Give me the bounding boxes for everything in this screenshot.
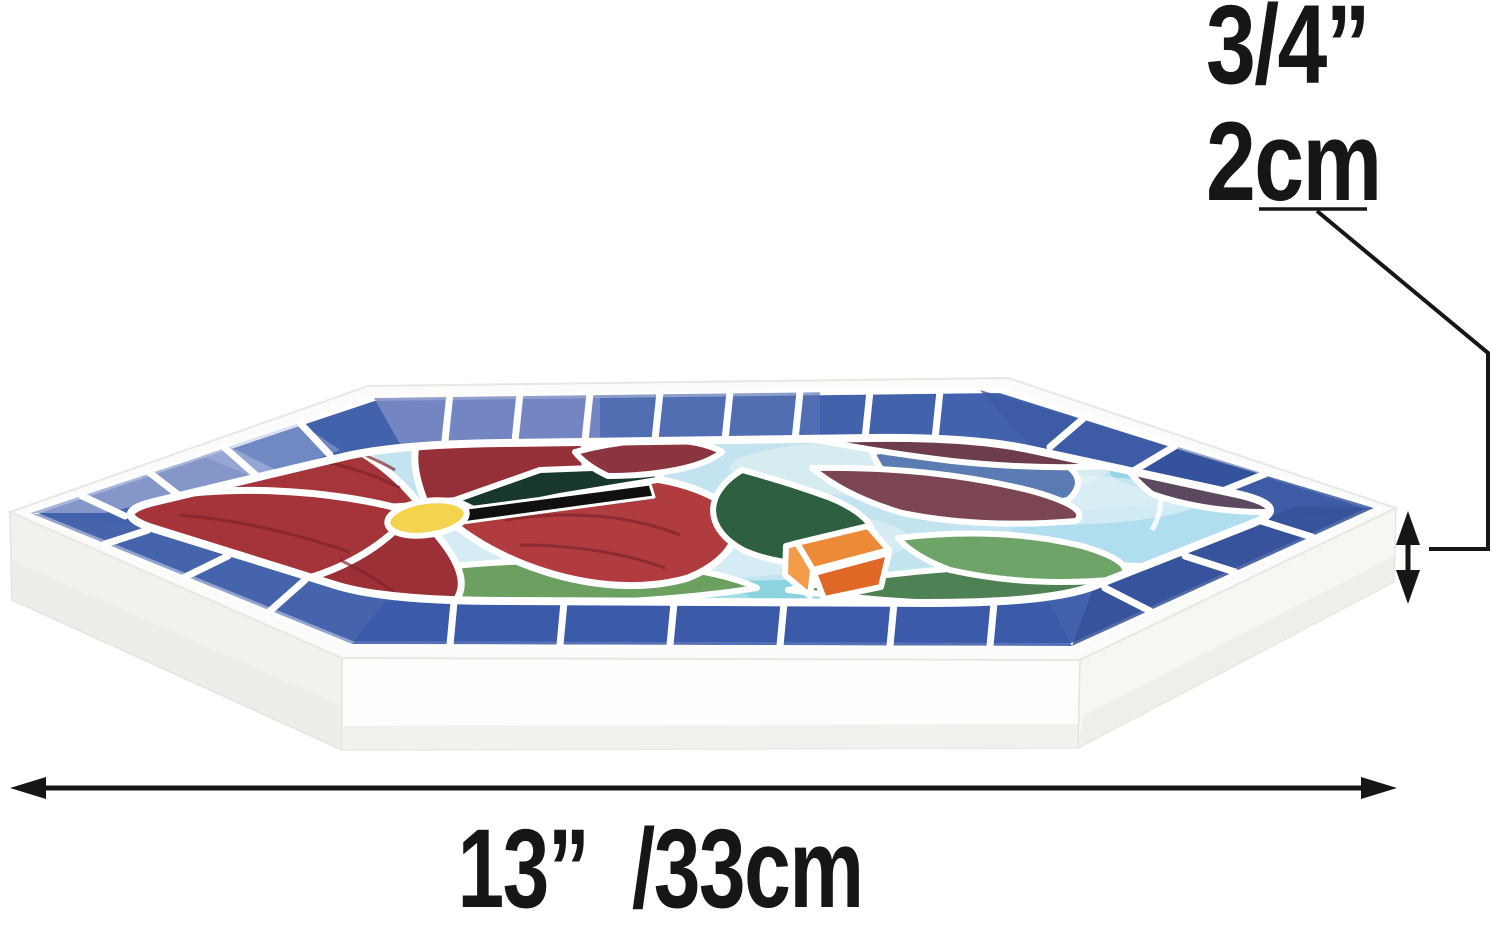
- thickness-label: 3/4” 2cm: [1206, 0, 1381, 220]
- width-label: 13” /33cm: [165, 804, 1155, 933]
- thickness-label-inches: 3/4”: [1206, 0, 1381, 103]
- stone-side-front-shade: [342, 724, 1078, 750]
- width-label-cm: /33cm: [632, 804, 863, 933]
- arrow-right-icon: [1361, 777, 1397, 799]
- thickness-dimension-arrow: [1396, 511, 1420, 604]
- width-label-inches: 13”: [457, 804, 588, 933]
- thickness-label-cm: 2cm: [1206, 103, 1381, 220]
- width-dimension-arrow: [10, 777, 1397, 799]
- arrow-up-icon: [1396, 511, 1420, 545]
- arrow-left-icon: [10, 777, 46, 799]
- arrow-down-icon: [1396, 570, 1420, 604]
